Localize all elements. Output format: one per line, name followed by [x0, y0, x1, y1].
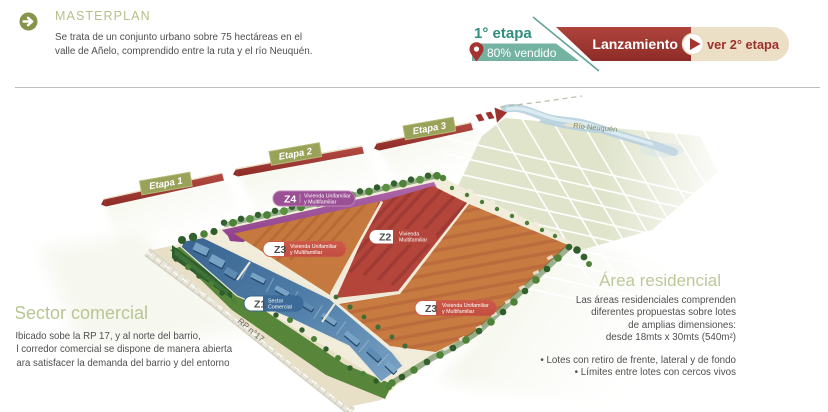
- svg-text:Multifamiliar: Multifamiliar: [399, 238, 427, 244]
- svg-text:Z2: Z2: [379, 232, 391, 244]
- svg-text:80% vendido: 80% vendido: [487, 46, 557, 60]
- svg-text:y Multifamiliar: y Multifamiliar: [304, 200, 337, 206]
- svg-text:Z4: Z4: [284, 194, 296, 206]
- svg-text:Z3: Z3: [274, 244, 286, 256]
- svg-text:1° etapa: 1° etapa: [474, 25, 532, 42]
- svg-text:Lanzamiento: Lanzamiento: [592, 36, 678, 52]
- svg-text:ver 2° etapa: ver 2° etapa: [707, 37, 780, 52]
- svg-text:y Multifamiliar: y Multifamiliar: [290, 250, 323, 256]
